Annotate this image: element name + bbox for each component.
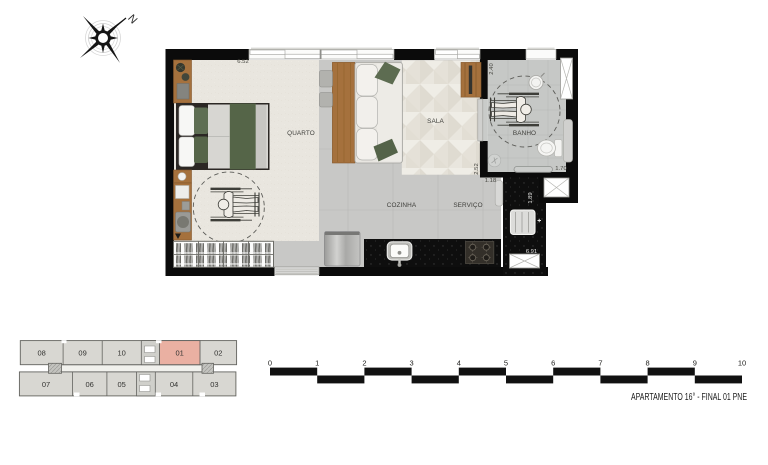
svg-text:04: 04 (170, 380, 178, 389)
svg-text:6: 6 (551, 359, 555, 368)
svg-text:0: 0 (268, 359, 272, 368)
svg-text:9: 9 (693, 359, 697, 368)
svg-text:07: 07 (42, 380, 50, 389)
svg-text:QUARTO: QUARTO (287, 130, 315, 137)
svg-text:5: 5 (504, 359, 508, 368)
svg-text:COZINHA: COZINHA (387, 202, 417, 209)
svg-text:1.70: 1.70 (555, 166, 567, 172)
svg-text:06: 06 (86, 380, 94, 389)
svg-text:BANHO: BANHO (513, 130, 536, 137)
svg-text:10: 10 (738, 359, 746, 368)
svg-text:APARTAMENTO 16° - FINAL 01 PNE: APARTAMENTO 16° - FINAL 01 PNE (631, 392, 747, 403)
svg-text:1.89: 1.89 (528, 192, 534, 203)
svg-text:6.52: 6.52 (237, 59, 248, 65)
svg-text:SERVIÇO: SERVIÇO (453, 202, 482, 209)
svg-text:03: 03 (210, 380, 218, 389)
svg-text:08: 08 (38, 349, 46, 358)
svg-text:2.52: 2.52 (474, 163, 480, 174)
svg-text:7: 7 (598, 359, 602, 368)
svg-text:3: 3 (410, 359, 414, 368)
svg-text:02: 02 (214, 349, 222, 358)
svg-text:10: 10 (118, 349, 126, 358)
svg-text:2: 2 (362, 359, 366, 368)
svg-text:2.40: 2.40 (489, 63, 495, 75)
svg-text:8: 8 (646, 359, 650, 368)
svg-text:05: 05 (118, 380, 126, 389)
svg-text:6.91: 6.91 (526, 249, 537, 255)
svg-text:1: 1 (315, 359, 319, 368)
svg-text:1.18: 1.18 (485, 178, 497, 184)
svg-text:SALA: SALA (427, 118, 444, 125)
svg-text:4: 4 (457, 359, 461, 368)
svg-text:01: 01 (176, 349, 184, 358)
svg-text:09: 09 (78, 349, 86, 358)
